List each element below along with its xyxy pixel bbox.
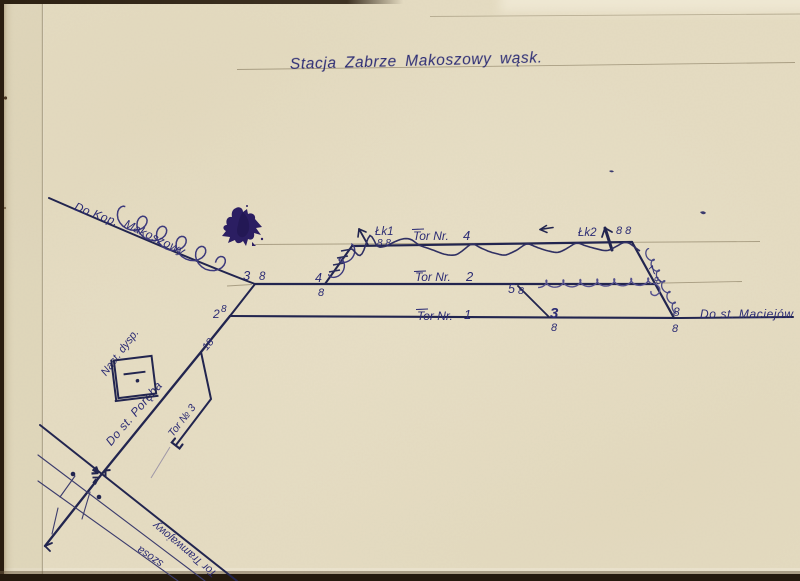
svg-text:8: 8	[672, 323, 679, 335]
svg-text:8: 8	[259, 271, 266, 283]
svg-text:8: 8	[673, 305, 680, 319]
svg-text:3: 3	[550, 305, 559, 322]
svg-text:2: 2	[465, 269, 474, 284]
svg-text:8: 8	[518, 285, 524, 297]
svg-text:8: 8	[551, 322, 558, 334]
svg-text:8 8: 8 8	[616, 225, 632, 237]
svg-text:Tor Nr.: Tor Nr.	[415, 270, 451, 284]
svg-text:Łk2: Łk2	[578, 227, 597, 239]
svg-text:1: 1	[464, 307, 471, 322]
svg-text:8: 8	[221, 304, 227, 315]
svg-text:5: 5	[508, 282, 515, 296]
svg-text:8: 8	[318, 287, 325, 299]
svg-text:4: 4	[315, 271, 322, 285]
svg-text:Do st. Maciejów: Do st. Maciejów	[700, 307, 794, 321]
svg-text:Tor Nr.: Tor Nr.	[417, 309, 453, 323]
svg-text:Tor Nr.: Tor Nr.	[413, 229, 449, 243]
svg-text:8 8: 8 8	[377, 238, 391, 249]
svg-text:Łk1: Łk1	[375, 226, 394, 238]
svg-text:4: 4	[463, 228, 470, 243]
svg-text:2: 2	[212, 307, 220, 321]
svg-text:3: 3	[243, 268, 251, 283]
